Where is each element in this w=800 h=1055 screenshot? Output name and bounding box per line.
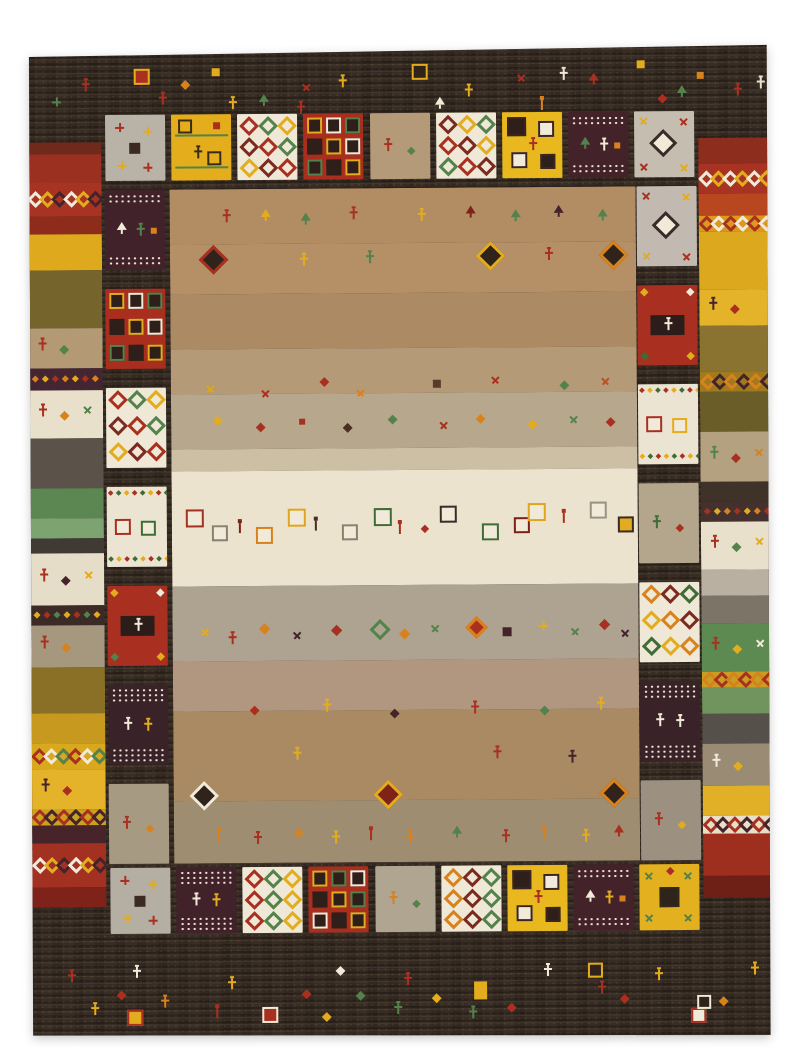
rug-detail: [563, 69, 565, 80]
rug-detail: [548, 249, 550, 260]
pole-motif: [398, 520, 402, 534]
per-motif: [161, 997, 169, 1008]
di-motif: [672, 453, 678, 459]
rug-detail: [576, 916, 630, 926]
plus-motif: [117, 161, 126, 170]
tree-motif: [435, 97, 445, 109]
border-patch-trees: [105, 190, 166, 270]
pole-motif: [217, 827, 221, 841]
per-motif: [384, 140, 392, 151]
rug-detail: [228, 981, 236, 983]
fsq-motif: [207, 151, 221, 165]
rug-detail: [254, 836, 262, 838]
stripe-band: [702, 623, 773, 671]
per-motif: [133, 967, 141, 978]
pole-motif: [314, 517, 318, 531]
rug-detail: [712, 299, 714, 310]
tree-motif: [677, 85, 687, 97]
sq-motif: [151, 228, 157, 234]
per-motif: [560, 69, 568, 80]
rug-detail: [259, 94, 269, 102]
fdi-motif: [240, 137, 260, 157]
stripe-band: [699, 325, 770, 371]
rug-detail: [541, 100, 543, 110]
stripe-band: [699, 215, 770, 231]
border-patch-diamonds: [106, 388, 167, 468]
di-motif: [132, 490, 138, 496]
fdi-motif: [127, 390, 147, 410]
di-motif: [132, 556, 138, 562]
fdi-motif: [108, 390, 128, 410]
rug-detail: [601, 983, 603, 994]
di-motif: [687, 387, 693, 393]
x-motif: [489, 373, 502, 386]
rug-detail: [94, 1004, 96, 1015]
di-motif: [764, 507, 771, 514]
di-motif: [124, 490, 130, 496]
rug-detail: [298, 835, 300, 839]
stripe-band: [29, 368, 103, 391]
rug-detail: [41, 640, 49, 642]
border-patch-dots: [108, 685, 169, 765]
rug-detail: [736, 83, 740, 85]
per-motif: [300, 255, 308, 266]
rug-detail: [70, 969, 74, 971]
fsq-motif: [646, 416, 662, 432]
per-motif: [42, 780, 50, 791]
fsq-motif: [148, 345, 163, 361]
di-motif: [407, 147, 415, 155]
fdi-motif: [462, 889, 482, 909]
rug-detail: [239, 523, 241, 533]
fdi-motif: [258, 116, 278, 136]
sq-motif: [299, 419, 305, 425]
di-motif: [356, 991, 366, 1001]
fdi-motif: [146, 390, 166, 410]
plus-motif: [115, 123, 124, 132]
fsq-motif: [307, 118, 322, 134]
rug-detail: [137, 618, 141, 620]
fsq-motif: [528, 503, 546, 521]
rug-detail: [41, 337, 45, 339]
fdi-motif: [457, 136, 477, 156]
rug-detail: [602, 138, 606, 140]
stripe-band: [30, 488, 104, 519]
stripe-band: [701, 481, 772, 501]
rug-detail: [384, 143, 392, 145]
rug-detail: [44, 637, 46, 648]
fdi-motif: [680, 610, 700, 630]
di-motif: [93, 611, 100, 618]
pole-motif: [540, 96, 544, 110]
per-motif: [135, 620, 143, 631]
stripe-band: [27, 182, 101, 217]
fsq-motif: [128, 293, 143, 309]
border-patch-diamonds: [639, 582, 700, 662]
rug-detail: [215, 893, 219, 895]
rug-detail: [148, 883, 157, 885]
rug-detail: [580, 137, 590, 145]
di-motif: [140, 490, 146, 496]
fdi-motif: [438, 157, 458, 177]
x-motif: [300, 81, 313, 94]
rug-detail: [409, 832, 411, 843]
rug-detail: [505, 831, 507, 842]
x-motif: [753, 535, 766, 548]
di-motif: [108, 490, 114, 496]
sq-motif: [503, 627, 512, 636]
patch-grass-line: [175, 134, 228, 136]
fdi-motif: [239, 116, 259, 136]
rug-detail: [452, 826, 462, 834]
rug-detail: [421, 210, 423, 221]
rug-detail: [139, 223, 143, 225]
field-motif-layer: [170, 186, 641, 863]
photo-background: [0, 0, 800, 1055]
plus-motif: [123, 914, 132, 923]
fdi-motif: [481, 867, 501, 887]
fsq-motif: [326, 117, 341, 133]
rug-detail: [162, 94, 164, 105]
per-motif: [597, 699, 605, 710]
fdi-motif: [283, 890, 303, 910]
stripe-band: [28, 216, 102, 235]
fsq-motif: [115, 519, 131, 535]
fdi-motif: [476, 241, 506, 271]
rug-detail: [602, 217, 604, 221]
tree-motif: [259, 94, 269, 106]
per-motif: [534, 892, 542, 903]
rug-detail: [465, 88, 473, 90]
rug-detail: [607, 891, 611, 893]
di-motif: [599, 619, 610, 630]
border-patch-animals: [171, 114, 231, 180]
di-motif: [73, 611, 80, 618]
rug-detail: [342, 76, 344, 87]
per-motif: [712, 756, 720, 767]
di-motif: [60, 411, 70, 421]
plus-motif: [539, 621, 548, 630]
rug-detail: [614, 824, 624, 832]
di-motif: [140, 556, 146, 562]
rug-detail: [418, 213, 426, 215]
rug-detail: [305, 221, 307, 225]
rug-detail: [585, 890, 595, 898]
fsq-motif: [256, 527, 273, 544]
border-patch-plainstripe: [369, 113, 429, 179]
tree-motif: [511, 209, 521, 221]
per-motif: [40, 570, 48, 581]
di-motif: [432, 993, 442, 1003]
rug-detail: [470, 213, 472, 217]
rug-detail: [301, 213, 311, 221]
fsq-motif: [313, 871, 328, 887]
fdi-motif: [199, 245, 229, 275]
rug-detail: [618, 832, 620, 836]
per-motif: [193, 894, 201, 905]
di-motif: [62, 375, 69, 382]
rug-detail: [608, 893, 610, 904]
di-motif: [256, 423, 266, 433]
fsq-motif: [346, 159, 361, 175]
rug-detail: [467, 83, 471, 85]
fsq-motif: [327, 159, 342, 175]
di-motif: [714, 508, 721, 515]
rug-detail: [399, 524, 401, 534]
rug-detail: [293, 752, 301, 754]
rug-detail: [714, 754, 718, 756]
rug-detail: [326, 701, 328, 712]
stripe-band: [699, 289, 770, 325]
fdi-motif: [759, 372, 771, 389]
per-motif: [228, 978, 236, 989]
di-motif: [679, 387, 685, 393]
di-motif: [686, 288, 694, 296]
rug-detail: [295, 747, 299, 749]
rug-detail: [42, 568, 46, 570]
rug-detail: [593, 81, 595, 85]
di-motif: [606, 417, 616, 427]
x-motif: [677, 115, 690, 128]
rug-detail: [40, 573, 48, 575]
di-motif: [259, 623, 270, 634]
rug-detail: [108, 194, 162, 204]
per-motif: [389, 893, 397, 904]
border-patch-medallion: [637, 186, 698, 266]
rug-detail: [710, 451, 718, 453]
rug-detail: [677, 85, 687, 93]
fdi-motif: [599, 240, 629, 270]
rug-detail: [226, 211, 228, 222]
rug-detail: [117, 164, 126, 166]
di-motif: [59, 345, 69, 355]
tree-motif: [301, 213, 311, 225]
fsq-motif: [516, 905, 532, 921]
di-motif: [696, 453, 699, 459]
fsq-motif: [440, 506, 457, 523]
fsq-motif: [327, 138, 342, 154]
rug-detail: [164, 997, 166, 1008]
tree-motif: [452, 826, 462, 838]
per-motif: [712, 639, 720, 650]
fdi-motif: [264, 890, 284, 910]
right-stripe-border: [698, 137, 774, 902]
rug-detail: [179, 870, 233, 884]
stripe-band: [28, 270, 102, 329]
fdi-motif: [278, 137, 298, 157]
fdi-motif: [92, 856, 107, 873]
di-motif: [343, 423, 353, 433]
stripe-band: [29, 438, 103, 489]
pole-motif: [238, 519, 242, 533]
fsq-motif: [618, 516, 634, 532]
fdi-motif: [189, 781, 219, 811]
fdi-motif: [264, 911, 284, 931]
stripe-band: [28, 234, 102, 271]
rug-detail: [216, 895, 218, 906]
x-motif: [638, 160, 651, 173]
rug-detail: [757, 80, 765, 82]
di-motif: [688, 453, 694, 459]
rug-detail: [231, 631, 235, 633]
rug-detail: [39, 342, 47, 344]
per-motif: [144, 720, 152, 731]
di-motif: [732, 644, 742, 654]
border-patch-squares: [303, 113, 363, 179]
di-motif: [664, 453, 670, 459]
stripe-band: [30, 553, 104, 606]
fdi-motif: [481, 888, 501, 908]
rug-detail: [369, 252, 371, 263]
x-motif: [199, 626, 212, 639]
rug-detail: [261, 209, 271, 217]
per-motif: [751, 964, 759, 975]
fdi-motif: [240, 158, 260, 178]
rug-detail: [563, 513, 565, 523]
stripe-band: [698, 163, 769, 193]
rug-detail: [562, 67, 566, 69]
rug-detail: [584, 145, 586, 149]
rug-detail: [135, 965, 139, 967]
di-motif: [156, 556, 162, 562]
rug-detail: [303, 255, 305, 266]
di-motif: [61, 643, 71, 653]
per-motif: [465, 85, 473, 96]
fdi-motif: [457, 157, 477, 177]
x-motif: [619, 627, 632, 640]
stripe-band: [700, 371, 771, 391]
border-patch-bigsquares: [507, 865, 567, 931]
rug-detail: [334, 830, 338, 832]
di-motif: [686, 352, 694, 360]
per-motif: [676, 716, 684, 727]
fdi-motif: [127, 442, 147, 462]
rug-detail: [666, 317, 670, 319]
rug-detail: [760, 77, 762, 88]
rug-detail: [435, 97, 445, 105]
rug-detail: [536, 890, 540, 892]
x-motif: [637, 114, 650, 127]
fsq-motif: [659, 887, 679, 907]
patch-grass-line: [175, 166, 228, 168]
x-motif: [354, 386, 367, 399]
rug-detail: [223, 214, 231, 216]
di-motif: [164, 490, 167, 496]
rug-detail: [471, 705, 479, 707]
fdi-motif: [264, 869, 284, 889]
per-motif: [653, 517, 661, 528]
rug-detail: [658, 713, 662, 715]
fdi-motif: [108, 416, 128, 436]
rug-detail: [558, 213, 560, 217]
rug-detail: [655, 817, 663, 819]
rug-detail: [229, 101, 237, 103]
rug-detail: [180, 916, 234, 930]
tree-motif: [614, 824, 624, 836]
rug-detail: [85, 80, 87, 91]
right-patch-column: [635, 186, 704, 860]
rug-detail: [474, 702, 476, 713]
rug-detail: [657, 812, 661, 814]
fsq-motif: [109, 293, 124, 309]
stripe-band: [701, 569, 772, 595]
di-motif: [213, 416, 223, 426]
rug-detail: [540, 96, 544, 100]
rug-detail: [332, 835, 340, 837]
di-motif: [156, 490, 162, 496]
per-motif: [137, 225, 145, 236]
fdi-motif: [108, 442, 128, 462]
sq-motif: [697, 72, 704, 79]
stripe-band: [32, 825, 106, 844]
per-motif: [194, 147, 202, 158]
x-motif: [567, 413, 580, 426]
per-motif: [469, 1007, 477, 1018]
rug-photo: [0, 0, 800, 1055]
rug-detail: [754, 964, 756, 975]
rug-detail: [589, 73, 599, 81]
rug-detail: [493, 750, 501, 752]
di-motif: [719, 996, 729, 1006]
rug-detail: [753, 962, 757, 964]
pole-motif: [542, 825, 546, 839]
fsq-motif: [313, 892, 328, 908]
per-motif: [404, 974, 412, 985]
rug-detail: [714, 637, 718, 639]
di-motif: [731, 453, 741, 463]
x-motif: [680, 190, 693, 203]
fsq-motif: [540, 154, 555, 169]
plus-motif: [149, 916, 158, 925]
rug-detail: [300, 258, 308, 260]
stripe-band: [701, 595, 772, 623]
sq-motif: [129, 143, 140, 154]
rug-detail: [386, 138, 390, 140]
rug-detail: [93, 1002, 97, 1004]
sq-motif: [212, 68, 220, 76]
fdi-motif: [245, 869, 265, 889]
fsq-motif: [332, 870, 347, 886]
x-motif: [204, 382, 217, 395]
pole-motif: [215, 1004, 219, 1018]
per-motif: [545, 249, 553, 260]
di-motif: [157, 652, 165, 660]
rug-detail: [341, 74, 345, 76]
di-motif: [620, 994, 630, 1004]
di-motif: [657, 94, 667, 104]
rug-detail: [570, 750, 574, 752]
per-motif: [41, 637, 49, 648]
fdi-motif: [457, 115, 477, 135]
plus-motif: [148, 880, 157, 889]
stripe-band: [31, 713, 105, 744]
di-motif: [656, 453, 662, 459]
rug-detail: [473, 700, 477, 702]
rug-detail: [713, 759, 721, 761]
rug-detail: [456, 834, 458, 838]
di-motif: [72, 375, 79, 382]
rug-detail: [44, 778, 48, 780]
stripe-band: [703, 875, 774, 897]
fdi-motif: [87, 190, 102, 207]
rug-detail: [126, 717, 130, 719]
di-motif: [32, 376, 39, 383]
top-patch-row: [105, 109, 694, 183]
plus-motif: [120, 876, 129, 885]
rug-detail: [263, 102, 265, 106]
rug-detail: [127, 719, 129, 730]
di-motif: [640, 288, 648, 296]
